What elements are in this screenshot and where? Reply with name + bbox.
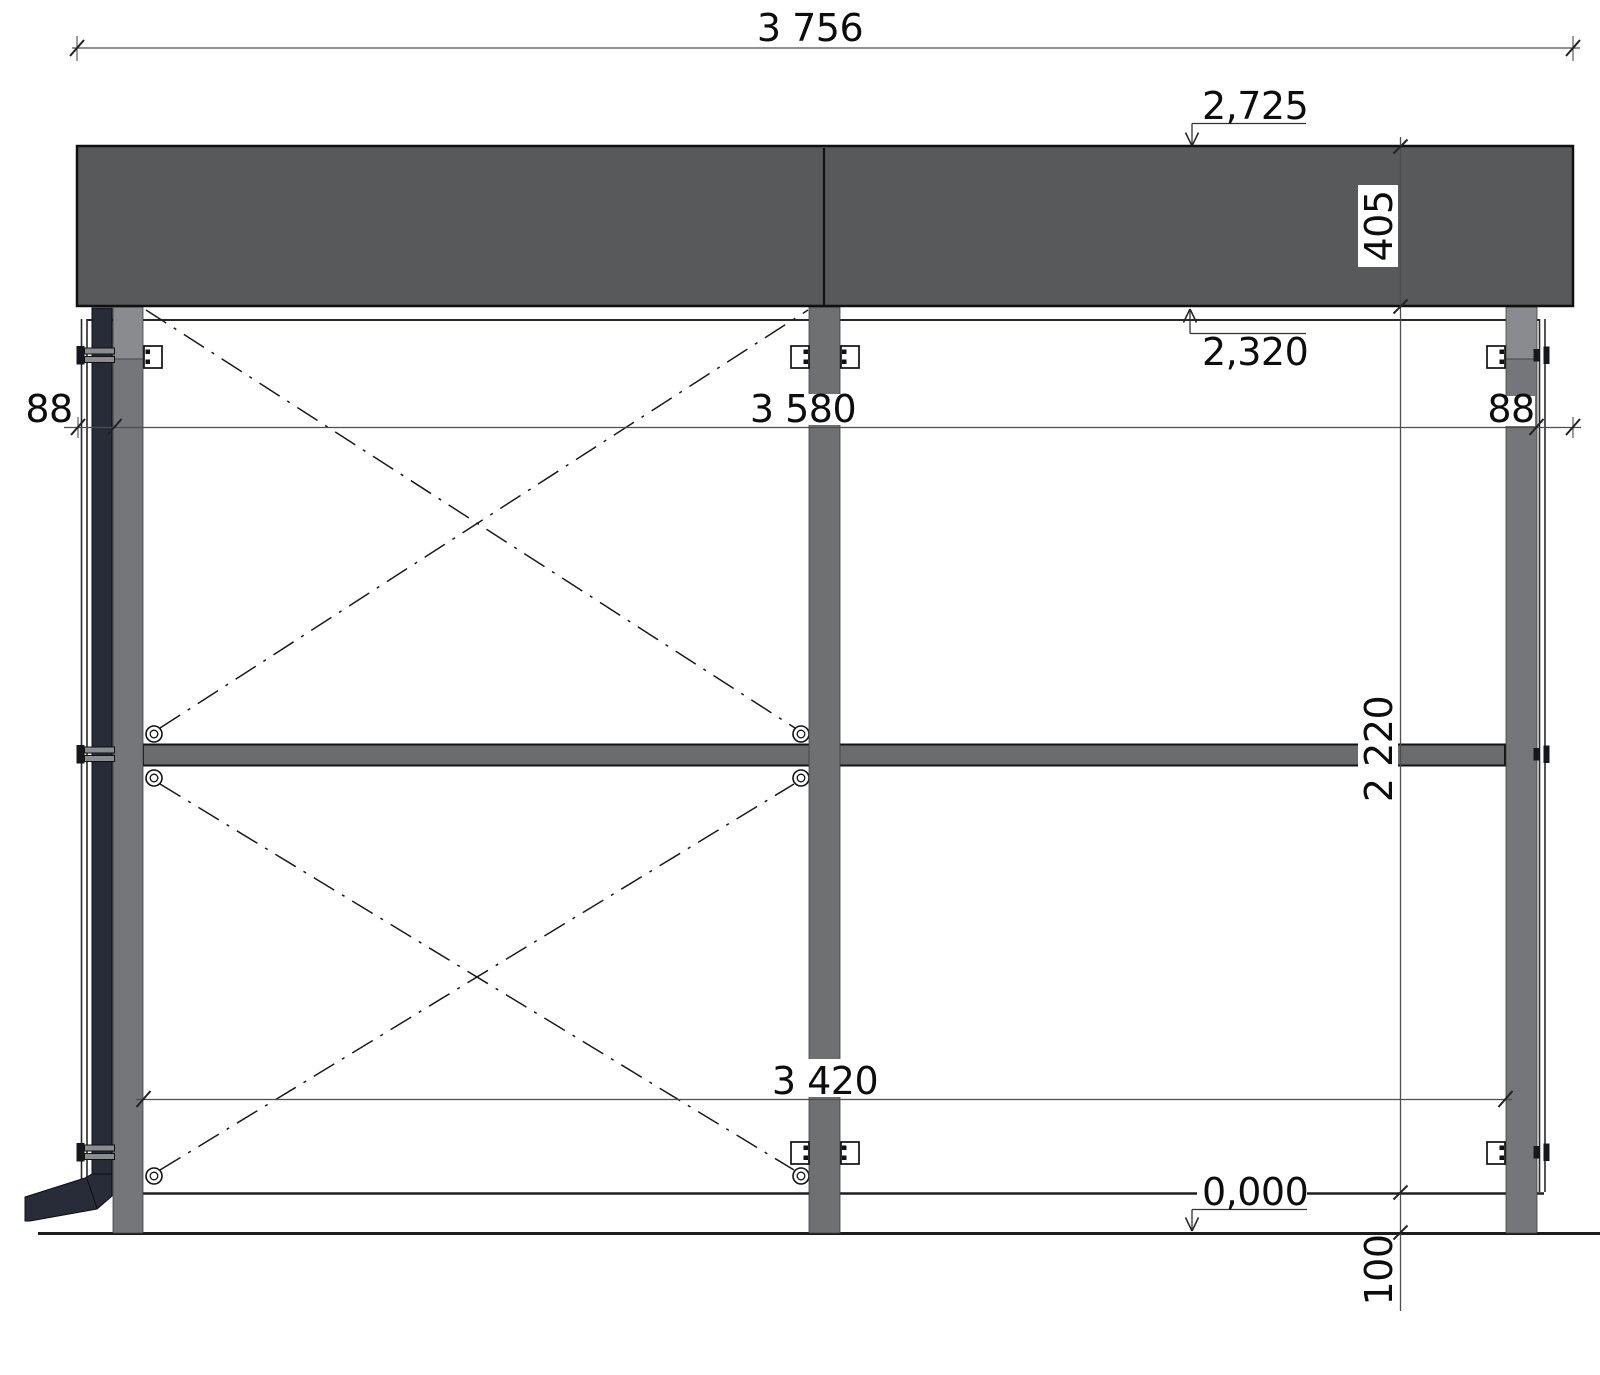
fascia-height-label: 405 [1357,190,1401,261]
elevation-svg: 3 756 2,725 405 2,320 88 3 580 88 2 220 … [0,0,1600,1375]
left-post-cap [113,307,143,359]
carport-elevation-drawing: 3 756 2,725 405 2,320 88 3 580 88 2 220 … [0,0,1600,1375]
brace-anchor [793,1168,809,1184]
right-offset-label: 88 [1487,387,1534,431]
glass-clamp [1534,347,1550,365]
cross-braces [146,310,808,1170]
right-post-cap [1506,307,1537,359]
post-bracket [841,346,859,368]
brace-anchor [146,726,162,742]
glass-clamp [1534,1144,1550,1162]
level-fascia-bottom-label: 2,320 [1202,330,1308,374]
brace-anchor [793,726,809,742]
post-bracket [791,1142,809,1164]
inner-width-label: 3 580 [750,387,856,431]
downspout-elbow [25,1174,112,1221]
upper-brace-b [160,310,808,728]
post-bracket [144,346,162,368]
frame-height-label: 2 220 [1357,696,1401,802]
post-bracket [791,346,809,368]
glass-clamp [1534,746,1550,764]
upper-brace-a [146,310,795,728]
level-ground-label: 0,000 [1202,1170,1308,1214]
post-bracket [1487,346,1505,368]
plinth-height-label: 100 [1357,1234,1401,1305]
left-offset-label: 88 [25,387,72,431]
level-top-label: 2,725 [1202,84,1308,128]
left-post [113,307,143,1233]
brace-anchor [146,770,162,786]
post-bracket [841,1142,859,1164]
brace-anchor [793,770,809,786]
post-bracket [1487,1142,1505,1164]
brace-anchors [146,726,809,1184]
clear-width-label: 3 420 [772,1059,878,1103]
brace-anchor [146,1168,162,1184]
overall-width-label: 3 756 [757,6,863,50]
